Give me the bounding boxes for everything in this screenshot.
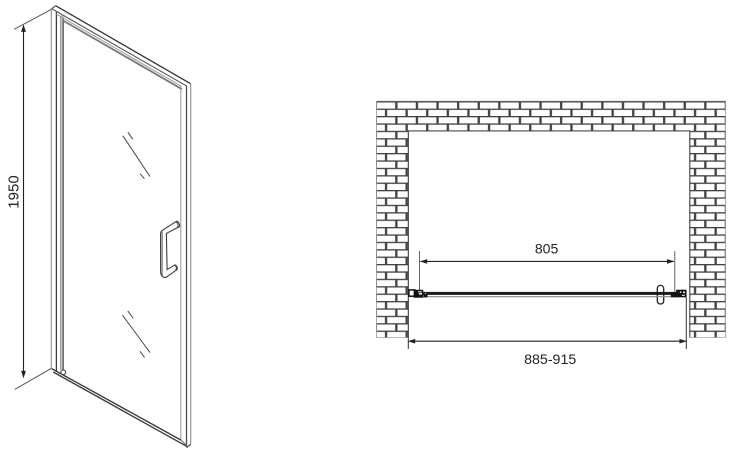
svg-text:805: 805 <box>535 241 559 257</box>
svg-text:885-915: 885-915 <box>524 352 576 368</box>
svg-text:1950: 1950 <box>6 175 23 208</box>
